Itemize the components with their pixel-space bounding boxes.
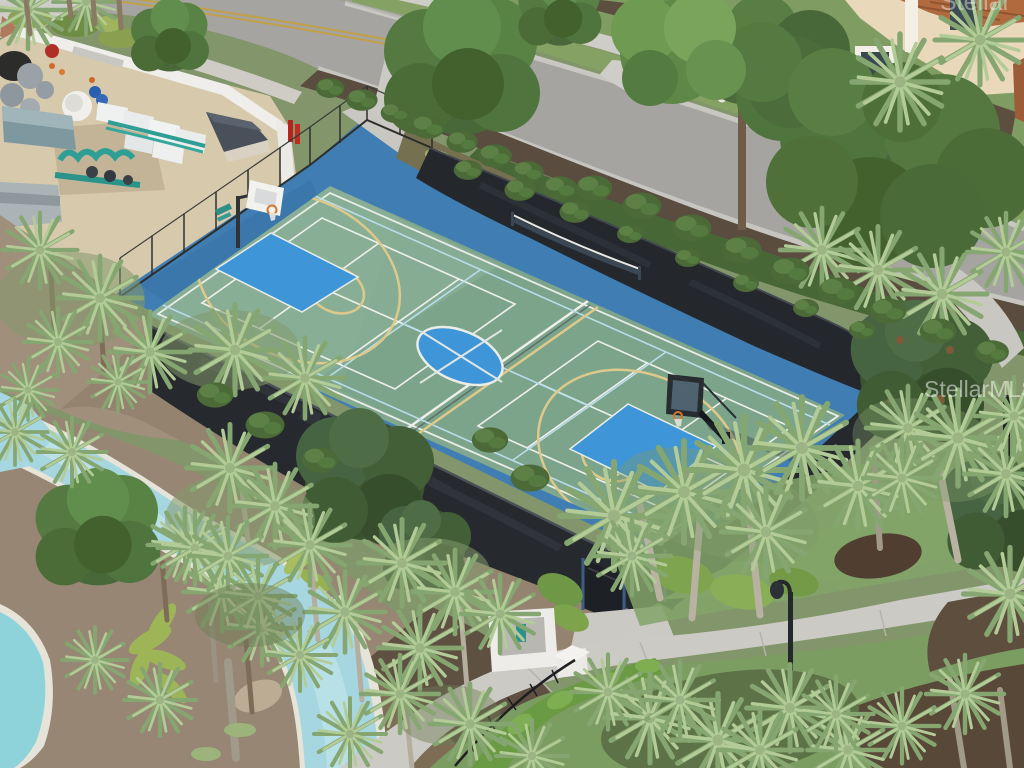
svg-text:Stellar: Stellar bbox=[940, 0, 1011, 16]
svg-text:StellarMLS: StellarMLS bbox=[924, 376, 1024, 402]
